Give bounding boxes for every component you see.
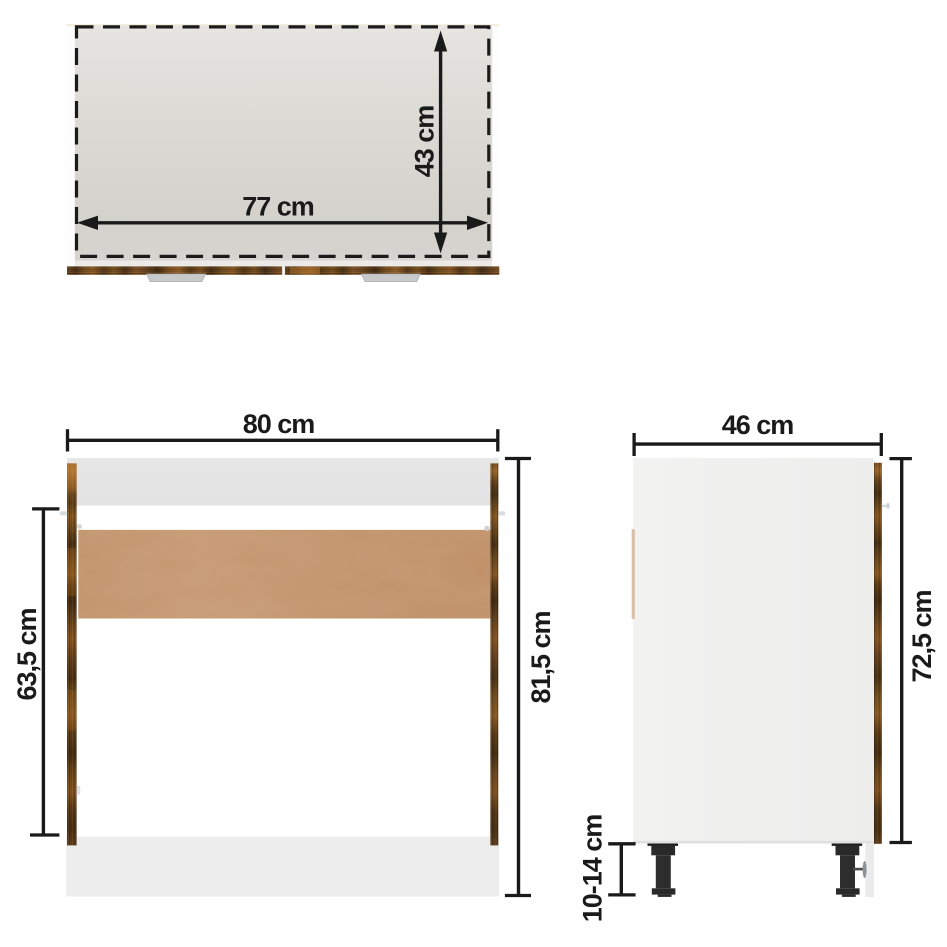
svg-text:80 cm: 80 cm xyxy=(243,409,315,439)
svg-text:72,5 cm: 72,5 cm xyxy=(907,590,937,682)
svg-text:10-14 cm: 10-14 cm xyxy=(578,815,608,923)
svg-text:81,5 cm: 81,5 cm xyxy=(526,611,556,703)
svg-text:77 cm: 77 cm xyxy=(242,192,314,222)
svg-text:46 cm: 46 cm xyxy=(722,410,794,440)
svg-text:63,5 cm: 63,5 cm xyxy=(12,608,42,700)
svg-text:43 cm: 43 cm xyxy=(410,106,440,178)
